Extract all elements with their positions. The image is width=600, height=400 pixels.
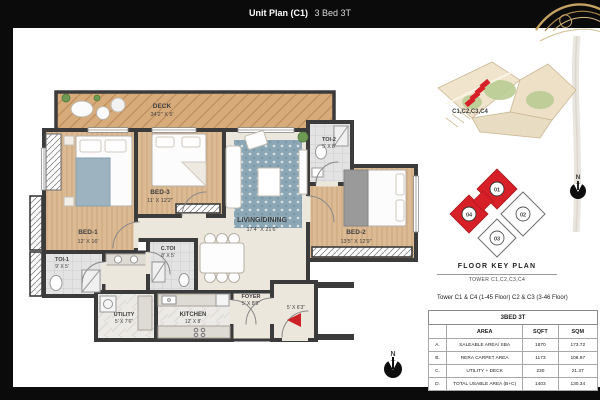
entry-wall-stub bbox=[316, 334, 354, 340]
floor-key-plan: 01 04 02 03 bbox=[450, 169, 545, 257]
bed-2-furniture bbox=[344, 170, 406, 226]
room-dim-kitchen: 12' X 8' bbox=[185, 319, 201, 325]
row-sqm: 21.37 bbox=[558, 365, 597, 378]
table-row: A. SALEABLE AREA/ SBA 1870 173.72 bbox=[429, 339, 598, 352]
svg-text:N: N bbox=[390, 351, 395, 358]
row-sqft: 230 bbox=[523, 365, 558, 378]
ledge-hatch bbox=[30, 196, 42, 250]
col-header-area: AREA bbox=[447, 325, 523, 339]
ledge-hatch bbox=[312, 247, 412, 257]
row-sqft: 1403 bbox=[523, 378, 558, 391]
row-idx: A. bbox=[429, 339, 447, 352]
bed-3-furniture bbox=[152, 134, 206, 186]
row-sqft: 1173 bbox=[523, 352, 558, 365]
room-dim-toi-2: 5' X 8' bbox=[322, 144, 336, 150]
room-dim-bed-2: 13'5" X 12'9" bbox=[340, 239, 371, 245]
col-header-blank bbox=[429, 325, 447, 339]
col-header-sqm: SQM bbox=[558, 325, 597, 339]
row-area: SALEABLE AREA/ SBA bbox=[447, 339, 523, 352]
room-label-deck: DECK bbox=[153, 103, 172, 110]
room-label-utility: UTILITY bbox=[114, 312, 135, 318]
room-label-living: LIVING/DINING bbox=[237, 217, 287, 224]
ledge-hatch bbox=[30, 252, 42, 296]
room-label-toi-1: TOI-1 bbox=[55, 257, 69, 263]
room-dim-bed-1: 12' X 16' bbox=[77, 239, 98, 245]
room-label-foyer: FOYER bbox=[242, 294, 261, 300]
north-compass-icon-top: N bbox=[570, 174, 586, 199]
row-sqm: 173.72 bbox=[558, 339, 597, 352]
area-table-title: 3BED 3T bbox=[429, 311, 598, 325]
entry-wall-stub bbox=[316, 282, 354, 288]
room-label-bed-2: BED-2 bbox=[346, 229, 366, 236]
deck-firepit-icon bbox=[111, 98, 125, 112]
site-map: C1,C2,C3,C4 bbox=[438, 62, 576, 138]
deck-lounge-icon bbox=[71, 101, 93, 117]
row-area: RERA CARPET AREA bbox=[447, 352, 523, 365]
unit-04-label: 04 bbox=[466, 213, 473, 219]
room-label-bed-3: BED-3 bbox=[150, 189, 170, 196]
row-sqft: 1870 bbox=[523, 339, 558, 352]
row-idx: D. bbox=[429, 378, 447, 391]
unit-02-label: 02 bbox=[520, 213, 526, 219]
room-dim-c-toi: 8' X 5' bbox=[161, 253, 175, 259]
row-area: TOTAL USABLE AREA (B+C) bbox=[447, 378, 523, 391]
row-area: UTILITY + DECK bbox=[447, 365, 523, 378]
room-label-bed-1: BED-1 bbox=[78, 229, 98, 236]
page-title: Unit Plan (C1) 3 Bed 3T bbox=[0, 8, 600, 18]
deck-chair-icon bbox=[97, 107, 110, 120]
plant-icon bbox=[94, 95, 100, 101]
col-header-sqft: SQFT bbox=[523, 325, 558, 339]
row-idx: C. bbox=[429, 365, 447, 378]
room-label-kitchen: KITCHEN bbox=[180, 312, 207, 318]
room-label-c-toi: C.TOI bbox=[161, 246, 176, 252]
table-row: C. UTILITY + DECK 230 21.37 bbox=[429, 365, 598, 378]
key-plan-title: FLOOR KEY PLAN bbox=[437, 263, 557, 270]
brochure-page: Unit Plan (C1) 3 Bed 3T bbox=[0, 0, 600, 400]
floor-plan: DECK 34'2" X 5' BED-1 12' X 16' BED-3 11… bbox=[30, 92, 418, 378]
page-title-main: Unit Plan (C1) bbox=[249, 8, 308, 18]
row-idx: B. bbox=[429, 352, 447, 365]
room-dim-living: 17'4" X 21'6" bbox=[246, 227, 277, 233]
room-dim-utility: 5' X 7'6" bbox=[115, 319, 133, 325]
table-row: B. RERA CARPET AREA 1173 108.97 bbox=[429, 352, 598, 365]
room-label-toi-2: TOI-2 bbox=[322, 137, 336, 143]
page-title-sub: 3 Bed 3T bbox=[315, 8, 352, 18]
room-dim-bed-3: 11' X 12'2" bbox=[147, 198, 173, 204]
area-table-header-row: AREA SQFT SQM bbox=[429, 325, 598, 339]
key-plan-divider bbox=[437, 274, 557, 275]
row-sqm: 130.34 bbox=[558, 378, 597, 391]
unit-03-label: 03 bbox=[494, 237, 500, 243]
north-compass-icon: N bbox=[384, 351, 402, 378]
tower-floor-note: Tower C1 & C4 (1-45 Floor) C2 & C3 (3-46… bbox=[437, 295, 599, 301]
unit-01-label: 01 bbox=[494, 188, 500, 194]
room-dim-toi-1: 9' X 5' bbox=[55, 264, 69, 270]
area-table: 3BED 3T AREA SQFT SQM A. SALEABLE AREA/ … bbox=[428, 310, 598, 391]
room-foyer bbox=[272, 282, 316, 340]
plant-icon bbox=[62, 94, 70, 102]
room-dim-deck: 34'2" X 5' bbox=[150, 112, 173, 118]
entry-dim-label: 5' X 6'3" bbox=[287, 305, 305, 311]
wardrobe-icon bbox=[46, 134, 61, 190]
key-plan-subtitle: TOWER C1,C2,C3,C4 bbox=[437, 277, 557, 283]
site-map-highlight-label: C1,C2,C3,C4 bbox=[452, 109, 488, 115]
room-dim-foyer: 5' X 8'9" bbox=[242, 301, 260, 307]
table-row: D. TOTAL USABLE AREA (B+C) 1403 130.34 bbox=[429, 378, 598, 391]
row-sqm: 108.97 bbox=[558, 352, 597, 365]
svg-text:N: N bbox=[576, 174, 581, 181]
living-furniture bbox=[226, 130, 308, 228]
dining-set bbox=[200, 234, 244, 283]
